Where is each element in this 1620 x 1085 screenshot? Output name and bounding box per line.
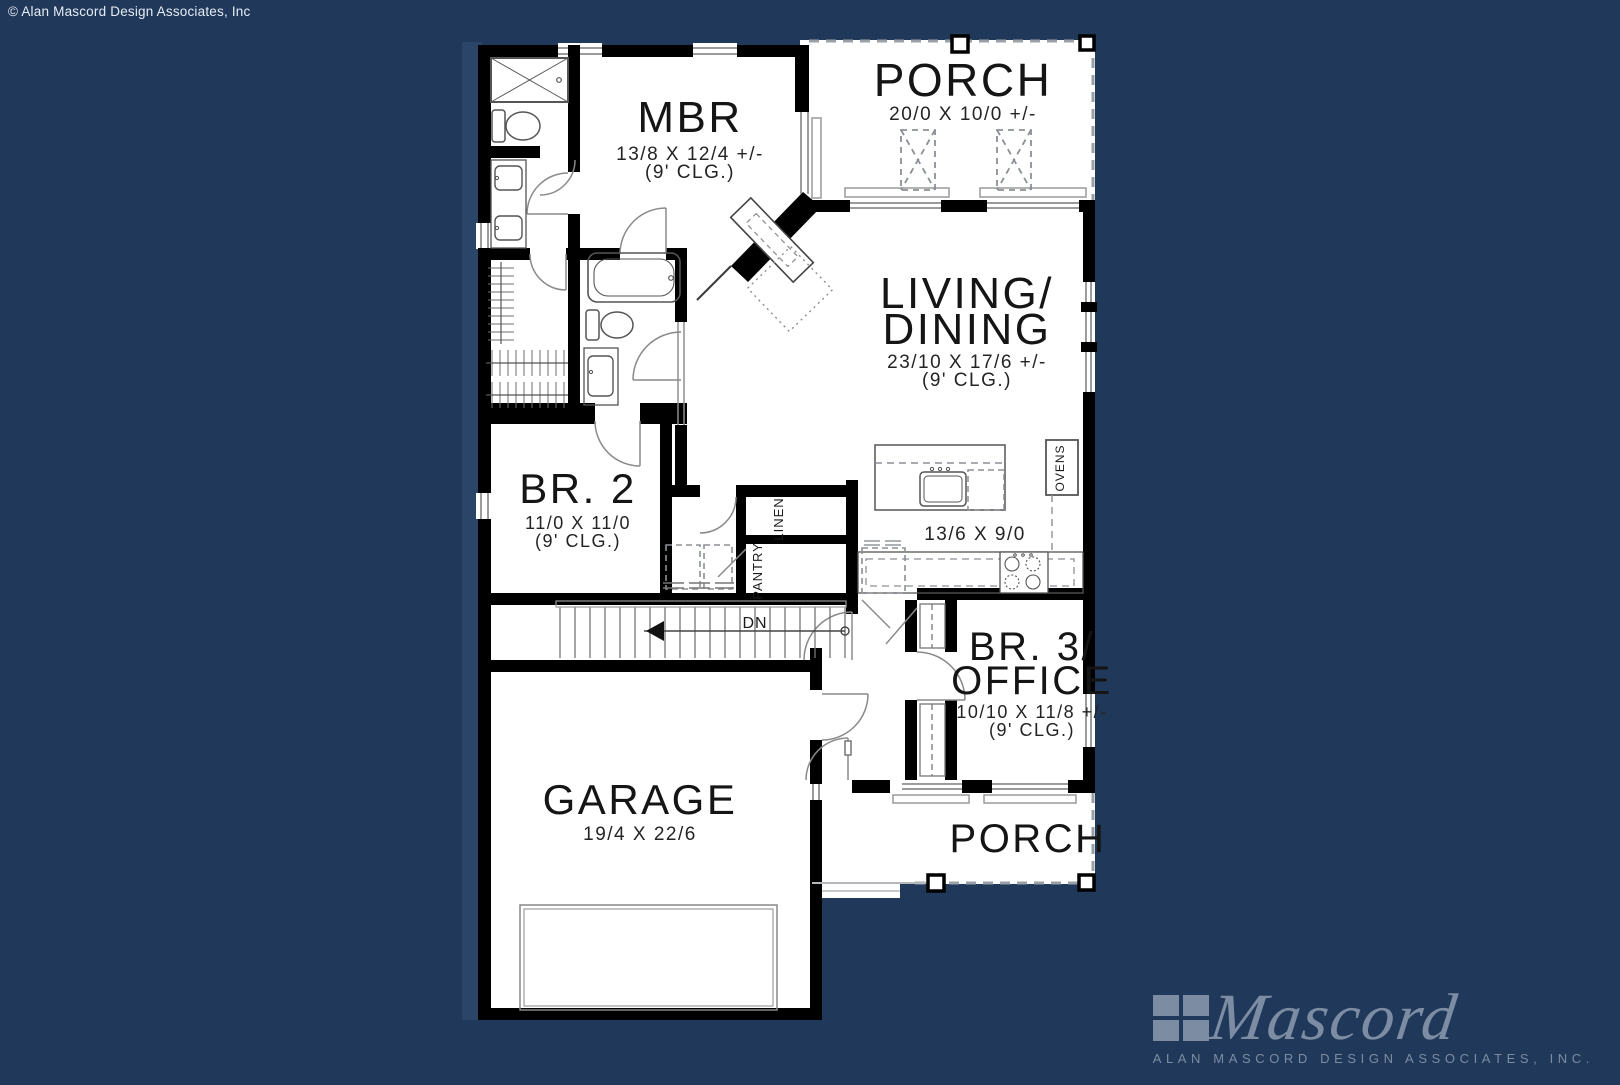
room-dims-garage: 19/4 X 22/6 <box>583 824 697 845</box>
room-clg-mbr: (9' CLG.) <box>645 162 735 183</box>
room-dims-br3: 10/10 X 11/8 +/- <box>956 702 1107 722</box>
ovens-label: OVENS <box>1053 444 1067 491</box>
mascord-window-icon <box>1153 995 1209 1041</box>
room-dims-br2: 11/0 X 11/0 <box>525 513 631 533</box>
room-label-br3-2: OFFICE <box>951 659 1113 703</box>
linen-label: LINEN <box>771 497 786 540</box>
room-label-porch-top: PORCH <box>874 54 1053 106</box>
mascord-logo-script: Mascord <box>1207 988 1462 1047</box>
room-label-br2: BR. 2 <box>519 465 637 512</box>
cooktop <box>1000 552 1048 593</box>
room-clg-br3: (9' CLG.) <box>989 720 1075 740</box>
pantry-label: PANTRY <box>750 542 765 600</box>
room-clg-br2: (9' CLG.) <box>535 531 621 551</box>
floor-plan-page: © Alan Mascord Design Associates, Inc <box>0 0 1620 1080</box>
room-dims-kitchen: 13/6 X 9/0 <box>924 524 1026 545</box>
room-label-porch-bottom: PORCH <box>950 817 1107 861</box>
room-label-garage: GARAGE <box>543 776 738 823</box>
copyright-text: © Alan Mascord Design Associates, Inc <box>8 4 250 19</box>
room-clg-living: (9' CLG.) <box>922 370 1012 391</box>
mascord-logo: Mascord ALAN MASCORD DESIGN ASSOCIATES, … <box>1153 988 1594 1066</box>
room-dims-porch-top: 20/0 X 10/0 +/- <box>889 104 1037 125</box>
stairs-dn-label: DN <box>742 615 767 632</box>
room-label-mbr: MBR <box>637 93 742 142</box>
floor-plan-drawing: MBR 13/8 X 12/4 +/- (9' CLG.) PORCH 20/0… <box>0 0 1620 1080</box>
room-label-living-2: DINING <box>883 305 1052 354</box>
